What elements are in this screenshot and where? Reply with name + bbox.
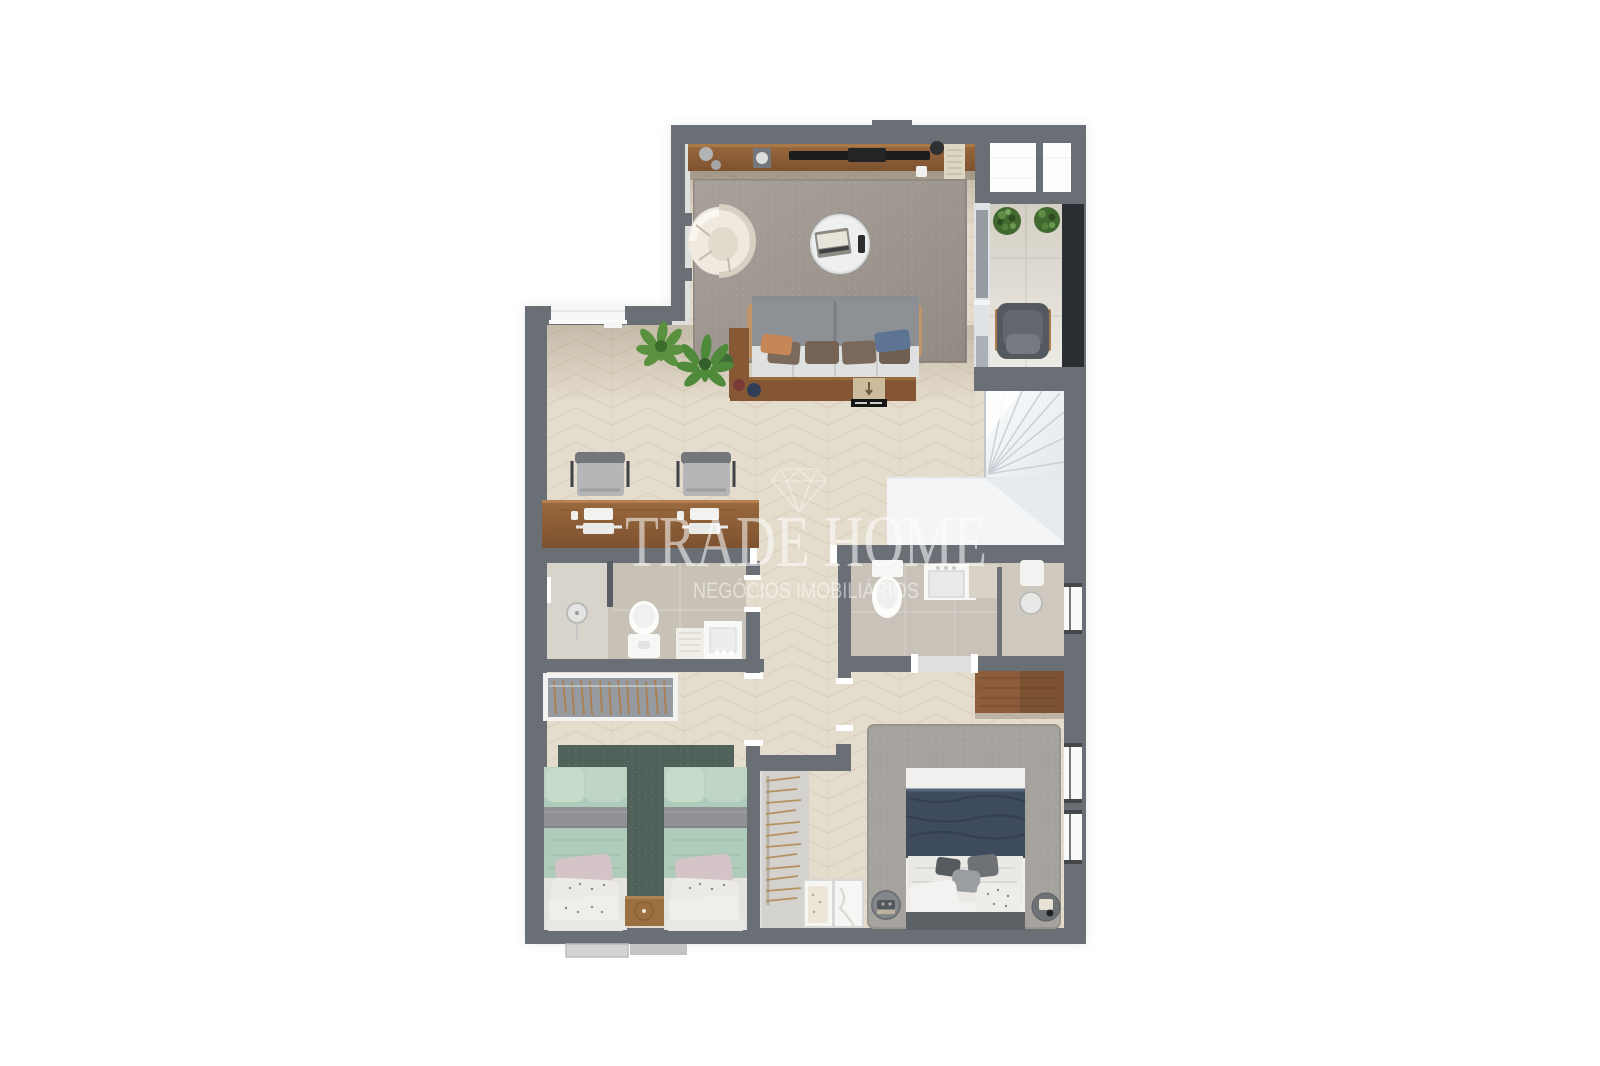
svg-text:NEGÓCIOS IMOBILIÁRIOS: NEGÓCIOS IMOBILIÁRIOS bbox=[693, 578, 919, 603]
svg-text:TRADE HOME: TRADE HOME bbox=[625, 501, 987, 582]
